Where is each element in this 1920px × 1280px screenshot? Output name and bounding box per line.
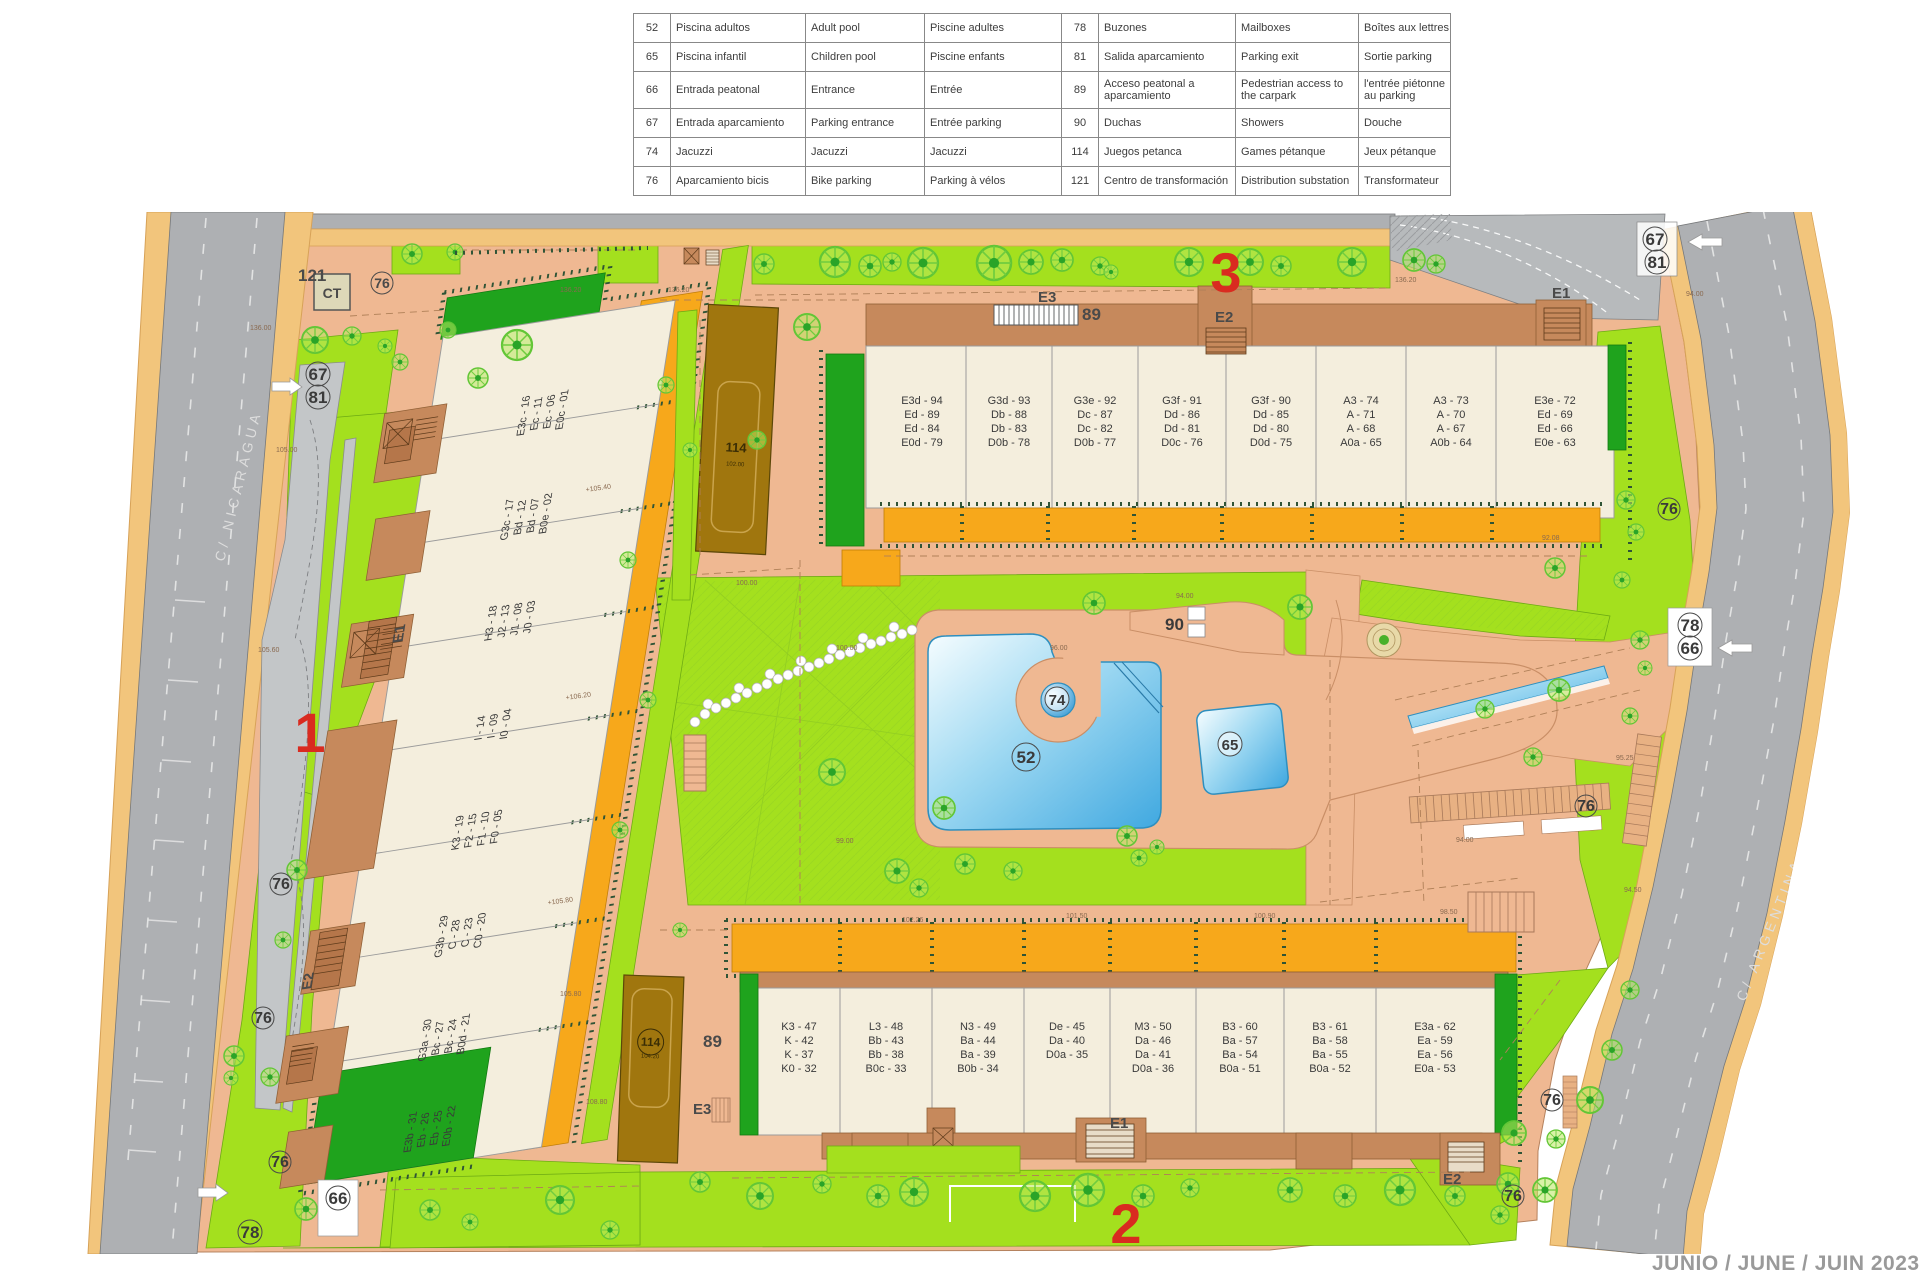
svg-text:E3: E3 xyxy=(693,1101,711,1118)
svg-text:104.20: 104.20 xyxy=(641,1054,660,1061)
svg-text:76: 76 xyxy=(1660,501,1678,518)
svg-text:74: 74 xyxy=(1049,692,1066,709)
svg-text:114: 114 xyxy=(725,439,747,455)
svg-text:E2: E2 xyxy=(1443,1171,1461,1188)
svg-text:78: 78 xyxy=(1681,616,1700,635)
svg-text:81: 81 xyxy=(1648,253,1667,272)
svg-text:65: 65 xyxy=(1222,737,1239,754)
svg-text:95.25: 95.25 xyxy=(1616,755,1634,762)
svg-text:76: 76 xyxy=(1504,1188,1522,1205)
svg-text:94.00: 94.00 xyxy=(1176,593,1194,600)
svg-text:2: 2 xyxy=(1110,1192,1141,1255)
svg-text:105.00: 105.00 xyxy=(276,447,298,454)
svg-text:67: 67 xyxy=(309,365,328,384)
svg-text:108.80: 108.80 xyxy=(586,1099,608,1106)
svg-text:101.50: 101.50 xyxy=(1066,913,1088,920)
svg-text:102.26: 102.26 xyxy=(902,917,924,924)
svg-text:De - 45Da - 40D0a - 35: De - 45Da - 40D0a - 35 xyxy=(1046,1021,1088,1061)
svg-text:76: 76 xyxy=(1543,1092,1561,1109)
svg-text:102.00: 102.00 xyxy=(726,461,745,468)
svg-text:94.00: 94.00 xyxy=(1456,837,1474,844)
svg-text:136.20: 136.20 xyxy=(1395,277,1417,284)
svg-text:67: 67 xyxy=(1646,230,1665,249)
svg-text:1: 1 xyxy=(294,701,325,764)
svg-text:E1: E1 xyxy=(1110,1115,1128,1132)
svg-text:94.50: 94.50 xyxy=(1624,887,1642,894)
svg-text:92.08: 92.08 xyxy=(1542,535,1560,542)
svg-text:76: 76 xyxy=(254,1010,272,1027)
svg-text:121: 121 xyxy=(298,266,326,285)
svg-text:100.90: 100.90 xyxy=(1254,913,1276,920)
svg-text:E2: E2 xyxy=(298,971,317,991)
svg-text:136.20: 136.20 xyxy=(668,287,690,294)
svg-text:105.80: 105.80 xyxy=(560,991,582,998)
svg-text:66: 66 xyxy=(329,1189,348,1208)
svg-text:76: 76 xyxy=(272,876,290,893)
svg-text:136.00: 136.00 xyxy=(250,325,272,332)
svg-text:105.60: 105.60 xyxy=(258,647,280,654)
svg-text:136.20: 136.20 xyxy=(560,287,582,294)
svg-text:94.00: 94.00 xyxy=(1686,291,1704,298)
svg-text:99.00: 99.00 xyxy=(836,838,854,845)
svg-text:76: 76 xyxy=(1577,798,1595,815)
svg-text:114: 114 xyxy=(641,1035,661,1050)
svg-text:98.50: 98.50 xyxy=(1440,909,1458,916)
svg-text:CT: CT xyxy=(323,285,342,301)
svg-text:E2: E2 xyxy=(1215,309,1233,326)
svg-text:89: 89 xyxy=(703,1032,722,1051)
svg-text:3: 3 xyxy=(1210,241,1241,304)
svg-text:81: 81 xyxy=(309,388,328,407)
svg-text:E1: E1 xyxy=(390,623,410,644)
svg-text:100.00: 100.00 xyxy=(736,580,758,587)
svg-text:66: 66 xyxy=(1681,639,1700,658)
svg-text:78: 78 xyxy=(241,1223,260,1242)
svg-text:76: 76 xyxy=(271,1154,289,1171)
svg-text:90: 90 xyxy=(1165,615,1184,634)
svg-text:E1: E1 xyxy=(1552,285,1570,302)
svg-text:100.00: 100.00 xyxy=(836,645,858,652)
svg-text:52: 52 xyxy=(1017,748,1036,767)
svg-text:89: 89 xyxy=(1082,305,1101,324)
svg-text:96.00: 96.00 xyxy=(1050,645,1068,652)
svg-text:76: 76 xyxy=(374,275,390,291)
